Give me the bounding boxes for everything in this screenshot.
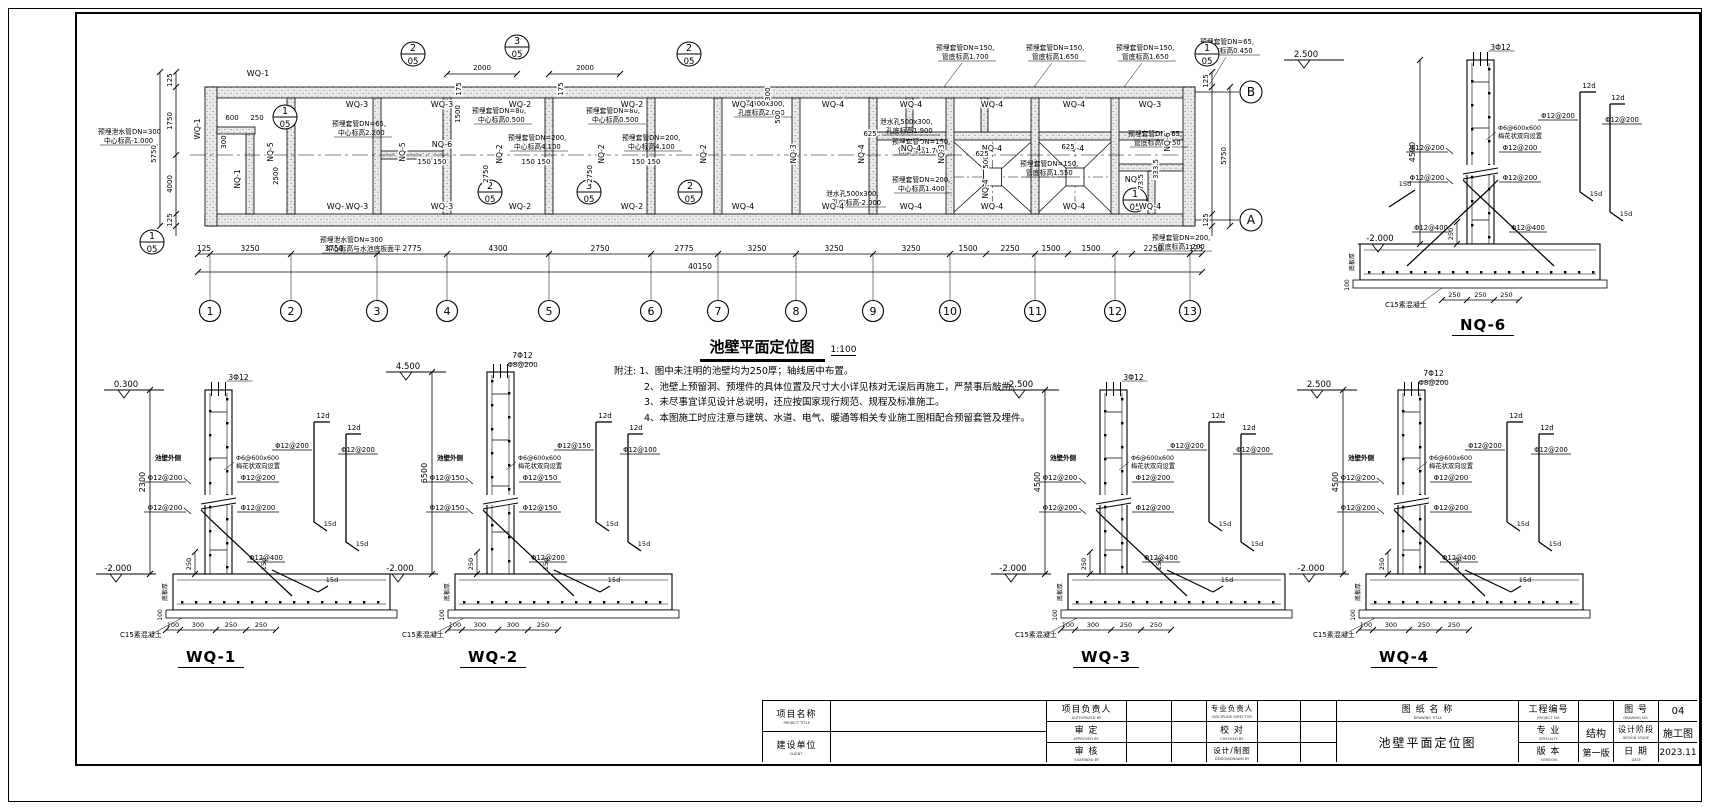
svg-text:Φ12@200: Φ12@200 <box>1236 446 1270 454</box>
svg-text:2500: 2500 <box>272 167 280 185</box>
svg-text:WQ-4: WQ-4 <box>981 100 1003 109</box>
svg-text:-2.000: -2.000 <box>1366 234 1393 244</box>
svg-text:100: 100 <box>439 609 446 621</box>
svg-text:6500: 6500 <box>420 463 429 483</box>
svg-text:15d: 15d <box>1590 190 1602 198</box>
svg-text:NQ-6: NQ-6 <box>1163 132 1172 151</box>
svg-text:2: 2 <box>410 43 416 54</box>
tb-discipline-director-label: 专业负责人DISCIPLINE DIRECTOR <box>1206 700 1257 721</box>
svg-text:预埋套管DN=200,: 预埋套管DN=200, <box>1152 233 1210 242</box>
svg-text:100: 100 <box>157 609 164 621</box>
svg-text:WQ-4: WQ-4 <box>732 100 754 109</box>
svg-text:Φ12@400: Φ12@400 <box>1414 224 1448 232</box>
svg-text:7Φ12: 7Φ12 <box>1423 369 1443 378</box>
svg-text:1: 1 <box>207 305 214 318</box>
tb-designed-sign <box>1257 742 1300 762</box>
tb-version-value: 第一版 <box>1578 742 1613 762</box>
svg-text:2: 2 <box>687 181 693 192</box>
tb-approved-label: 审 定APPROVED BY <box>1046 721 1126 742</box>
plan-title-wrap: 池壁平面定位图1:100 <box>648 336 908 362</box>
svg-text:8: 8 <box>793 305 800 318</box>
svg-text:3250: 3250 <box>240 244 259 253</box>
tb-checked-sign <box>1257 721 1300 742</box>
section-name-wq4: WQ-4 <box>1371 648 1437 668</box>
svg-text:125: 125 <box>1202 74 1210 87</box>
svg-text:100: 100 <box>1062 621 1074 629</box>
svg-text:C15素混凝土: C15素混凝土 <box>1385 300 1427 309</box>
svg-text:管底标高1.200: 管底标高1.200 <box>1158 242 1205 251</box>
svg-text:40150: 40150 <box>688 262 712 271</box>
svg-text:Φ6@600x600: Φ6@600x600 <box>518 454 561 462</box>
svg-text:250: 250 <box>1500 291 1512 299</box>
drawing-sheet: 1253250375027754300275027753250325032501… <box>0 0 1709 808</box>
svg-text:NQ-2: NQ-2 <box>495 144 504 163</box>
svg-text:11: 11 <box>1028 305 1042 318</box>
svg-text:12d: 12d <box>316 412 329 420</box>
section-name-wq3: WQ-3 <box>1073 648 1139 668</box>
svg-text:WQ-4: WQ-4 <box>822 100 844 109</box>
svg-text:Φ12@200: Φ12@200 <box>1503 144 1538 152</box>
svg-text:250: 250 <box>1080 558 1088 570</box>
svg-text:250: 250 <box>467 558 475 570</box>
svg-text:C15素混凝土: C15素混凝土 <box>120 630 162 639</box>
svg-text:250: 250 <box>250 114 263 122</box>
svg-text:12d: 12d <box>1540 424 1553 432</box>
svg-text:7Φ12: 7Φ12 <box>512 351 532 360</box>
svg-text:C15素混凝土: C15素混凝土 <box>1313 630 1355 639</box>
svg-text:底板厚: 底板厚 <box>1354 583 1362 601</box>
svg-text:底板厚: 底板厚 <box>1348 253 1356 271</box>
svg-text:Φ12@200: Φ12@200 <box>241 474 276 482</box>
svg-text:7: 7 <box>715 305 722 318</box>
svg-text:池壁外侧: 池壁外侧 <box>1050 453 1077 462</box>
svg-text:15d: 15d <box>608 576 620 584</box>
section-nq6: 3Φ122.500-2.0004500250底板厚100C15素混凝土25025… <box>1270 22 1694 322</box>
svg-text:Φ12@200: Φ12@200 <box>1341 504 1376 512</box>
svg-text:NQ-2: NQ-2 <box>597 144 606 163</box>
svg-text:150 150: 150 150 <box>632 158 661 166</box>
svg-text:WQ-3: WQ-3 <box>1139 100 1161 109</box>
svg-text:15d: 15d <box>1219 520 1231 528</box>
svg-text:Φ12@200: Φ12@200 <box>1341 474 1376 482</box>
svg-text:中心标高0.500: 中心标高0.500 <box>478 115 525 124</box>
svg-text:250: 250 <box>537 621 549 629</box>
svg-text:NQ-4: NQ-4 <box>857 144 866 163</box>
svg-text:2: 2 <box>686 43 692 54</box>
svg-text:12d: 12d <box>1611 94 1624 102</box>
tb-design-stage-value: 施工图 <box>1658 721 1697 742</box>
svg-text:中心标高与水池底板面平: 中心标高与水池底板面平 <box>326 244 401 253</box>
svg-text:WQ-4: WQ-4 <box>822 202 844 211</box>
svg-text:C15素混凝土: C15素混凝土 <box>1015 630 1057 639</box>
svg-text:12d: 12d <box>1582 82 1595 90</box>
svg-text:2.500: 2.500 <box>1009 380 1033 390</box>
svg-text:预埋套管DN=150,: 预埋套管DN=150, <box>1116 43 1174 52</box>
svg-text:池壁外侧: 池壁外侧 <box>437 453 464 462</box>
svg-text:Φ12@200: Φ12@200 <box>1410 144 1445 152</box>
svg-text:15d: 15d <box>1399 180 1411 188</box>
svg-text:WQ-4: WQ-4 <box>732 202 754 211</box>
svg-text:1: 1 <box>282 106 288 117</box>
svg-text:4000: 4000 <box>166 175 174 193</box>
svg-text:250: 250 <box>1447 228 1455 240</box>
svg-text:Φ12@200: Φ12@200 <box>1503 174 1538 182</box>
svg-text:15d: 15d <box>356 540 368 548</box>
svg-text:C15素混凝土: C15素混凝土 <box>402 630 444 639</box>
svg-text:175: 175 <box>557 82 565 95</box>
section-wq4: 7Φ12Φ8@2002.500-2.0004500250底板厚100C15素混凝… <box>1283 352 1588 645</box>
svg-text:NQ-3: NQ-3 <box>789 144 798 163</box>
svg-text:WQ-3: WQ-3 <box>431 100 453 109</box>
svg-text:300: 300 <box>1087 621 1099 629</box>
tb-spare-2 <box>1171 721 1206 742</box>
svg-text:Φ12@200: Φ12@200 <box>1170 442 1204 450</box>
svg-text:0.300: 0.300 <box>114 380 138 390</box>
section-wq2: 7Φ12Φ8@2004.500-2.0006500250底板厚100C15素混凝… <box>372 352 677 645</box>
svg-text:Φ6@600x600: Φ6@600x600 <box>1429 454 1472 462</box>
svg-text:预埋套管DN=150,: 预埋套管DN=150, <box>1026 43 1084 52</box>
svg-text:管底标高0.450: 管底标高0.450 <box>1134 138 1181 147</box>
svg-text:泄水孔500x300,: 泄水孔500x300, <box>880 117 933 126</box>
svg-text:中心标高-1.000: 中心标高-1.000 <box>104 136 153 145</box>
tb-designed-label: 设计/制图DESIGN/DRAWN BY <box>1206 742 1257 762</box>
tb-examined-label: 审 核EXAMINED BY <box>1046 742 1126 762</box>
svg-text:WQ-3: WQ-3 <box>346 202 368 211</box>
svg-text:600: 600 <box>225 114 238 122</box>
tb-discipline-director-sign <box>1257 700 1300 721</box>
tb-project-no-label: 工程编号PROJECT NO. <box>1518 700 1578 721</box>
svg-text:15d: 15d <box>606 520 618 528</box>
svg-text:15d: 15d <box>1221 576 1233 584</box>
svg-text:孔底标高1.900: 孔底标高1.900 <box>886 126 933 135</box>
svg-text:05: 05 <box>684 57 695 67</box>
svg-text:625: 625 <box>863 130 876 138</box>
svg-text:泄水孔500x300,: 泄水孔500x300, <box>826 189 879 198</box>
svg-text:100: 100 <box>1350 609 1357 621</box>
tb-design-stage-label: 设计阶段DESIGN STAGE <box>1613 721 1658 742</box>
svg-text:3Φ12: 3Φ12 <box>1123 373 1143 382</box>
svg-text:Φ12@150: Φ12@150 <box>523 504 558 512</box>
svg-text:15d: 15d <box>542 558 550 570</box>
svg-text:梅花状双向设置: 梅花状双向设置 <box>518 461 562 470</box>
svg-text:NQ-5: NQ-5 <box>398 142 407 161</box>
tb-approved-sign <box>1126 721 1171 742</box>
svg-text:100: 100 <box>1360 621 1372 629</box>
svg-text:3250: 3250 <box>747 244 766 253</box>
svg-text:Φ12@150: Φ12@150 <box>430 474 465 482</box>
svg-text:底板厚: 底板厚 <box>161 583 169 601</box>
svg-text:3: 3 <box>374 305 381 318</box>
tb-project-title-value <box>830 700 1046 731</box>
svg-text:-2.000: -2.000 <box>999 564 1026 574</box>
svg-text:05: 05 <box>280 120 291 130</box>
svg-text:Φ12@400: Φ12@400 <box>1511 224 1545 232</box>
svg-text:Φ12@200: Φ12@200 <box>1434 474 1469 482</box>
svg-text:NQ-1: NQ-1 <box>233 169 242 188</box>
svg-text:中心标高0.500: 中心标高0.500 <box>592 115 639 124</box>
svg-text:2750: 2750 <box>590 244 609 253</box>
svg-text:WQ-2: WQ-2 <box>621 100 643 109</box>
svg-text:Φ12@200: Φ12@200 <box>1043 474 1078 482</box>
svg-text:12d: 12d <box>629 424 642 432</box>
svg-text:625: 625 <box>975 150 988 158</box>
svg-text:300: 300 <box>220 135 228 148</box>
svg-text:100: 100 <box>1344 279 1351 291</box>
svg-text:12d: 12d <box>598 412 611 420</box>
svg-text:250: 250 <box>1150 621 1162 629</box>
svg-text:梅花状双向设置: 梅花状双向设置 <box>1498 131 1542 140</box>
svg-text:15d: 15d <box>1549 540 1561 548</box>
svg-text:-2.000: -2.000 <box>104 564 131 574</box>
svg-text:Φ12@150: Φ12@150 <box>430 504 465 512</box>
svg-text:预埋套管DN=200,: 预埋套管DN=200, <box>508 133 566 142</box>
svg-text:Φ12@200: Φ12@200 <box>1605 116 1639 124</box>
svg-text:3Φ12: 3Φ12 <box>228 373 248 382</box>
svg-text:125: 125 <box>166 213 174 226</box>
svg-text:Φ12@150: Φ12@150 <box>557 442 591 450</box>
svg-text:预埋套管DN=65,: 预埋套管DN=65, <box>332 119 386 128</box>
svg-text:73.5: 73.5 <box>1137 174 1145 190</box>
tb-specialty-label: 专 业SPECIALTY <box>1518 721 1578 742</box>
svg-text:05: 05 <box>685 195 696 205</box>
tb-drawing-no-value: 04 <box>1658 700 1697 721</box>
svg-text:WQ-4: WQ-4 <box>981 202 1003 211</box>
svg-text:Φ12@200: Φ12@200 <box>1410 174 1445 182</box>
svg-text:管底标高1.550: 管底标高1.550 <box>1026 168 1073 177</box>
svg-text:15d: 15d <box>1620 210 1632 218</box>
svg-text:2775: 2775 <box>402 244 421 253</box>
svg-text:300: 300 <box>192 621 204 629</box>
svg-text:05: 05 <box>512 50 523 60</box>
tb-project-director-sign <box>1126 700 1171 721</box>
svg-text:250: 250 <box>185 558 193 570</box>
tb-date-value: 2023.11 <box>1658 742 1697 762</box>
svg-text:3: 3 <box>514 36 520 47</box>
svg-text:300: 300 <box>764 87 772 100</box>
svg-text:预埋泄水管DN=300: 预埋泄水管DN=300 <box>98 127 161 136</box>
svg-text:2750: 2750 <box>586 165 594 183</box>
svg-text:3Φ12: 3Φ12 <box>1490 43 1510 52</box>
tb-spare-3 <box>1171 742 1206 762</box>
svg-text:3250: 3250 <box>824 244 843 253</box>
svg-text:WQ-1: WQ-1 <box>193 118 202 139</box>
svg-text:4: 4 <box>444 305 451 318</box>
svg-text:预埋套管DN=65,: 预埋套管DN=65, <box>1128 129 1182 138</box>
svg-text:12: 12 <box>1108 305 1122 318</box>
svg-text:250: 250 <box>1378 558 1386 570</box>
svg-text:Φ12@200: Φ12@200 <box>241 504 276 512</box>
svg-text:WQ-2: WQ-2 <box>621 202 643 211</box>
svg-text:1500: 1500 <box>454 105 462 123</box>
tb-date-label: 日 期DATE <box>1613 742 1658 762</box>
tb-checked-label: 校 对CHECKED BY <box>1206 721 1257 742</box>
svg-text:05: 05 <box>584 195 595 205</box>
svg-text:Φ12@200: Φ12@200 <box>1434 504 1469 512</box>
svg-text:梅花状双向设置: 梅花状双向设置 <box>236 461 280 470</box>
svg-text:Φ8@200: Φ8@200 <box>507 361 537 369</box>
svg-text:Φ12@200: Φ12@200 <box>1043 504 1078 512</box>
svg-text:2: 2 <box>288 305 295 318</box>
svg-text:4300: 4300 <box>488 244 507 253</box>
svg-text:250: 250 <box>1448 291 1460 299</box>
svg-text:100: 100 <box>167 621 179 629</box>
svg-text:5: 5 <box>546 305 553 318</box>
svg-text:预埋泄水管DN=300: 预埋泄水管DN=300 <box>320 235 383 244</box>
svg-text:6: 6 <box>648 305 655 318</box>
svg-text:15d: 15d <box>324 520 336 528</box>
tb-project-director-label: 项目负责人AUTHORIZED BY <box>1046 700 1126 721</box>
svg-text:12d: 12d <box>1211 412 1224 420</box>
svg-text:300: 300 <box>1385 621 1397 629</box>
svg-text:WQ-3: WQ-3 <box>346 100 368 109</box>
plan-scale: 1:100 <box>831 345 857 356</box>
svg-text:Φ12@200: Φ12@200 <box>275 442 309 450</box>
plan-title: 池壁平面定位图 <box>700 336 825 362</box>
svg-text:WQ-4: WQ-4 <box>1063 100 1085 109</box>
svg-text:125: 125 <box>166 73 174 86</box>
svg-text:15d: 15d <box>638 540 650 548</box>
svg-text:2250: 2250 <box>1000 244 1019 253</box>
svg-text:1: 1 <box>1204 43 1210 54</box>
svg-text:中心标高1.400: 中心标高1.400 <box>898 184 945 193</box>
tb-drawing-title-label: 图 纸 名 称DRAWING TITLE <box>1336 700 1518 721</box>
svg-text:12d: 12d <box>347 424 360 432</box>
svg-text:梅花状双向设置: 梅花状双向设置 <box>1131 461 1175 470</box>
svg-text:5750: 5750 <box>150 145 158 163</box>
svg-text:Φ12@200: Φ12@200 <box>1136 504 1171 512</box>
svg-text:05: 05 <box>1202 57 1213 67</box>
svg-text:B: B <box>1247 85 1255 99</box>
svg-text:-2.000: -2.000 <box>386 564 413 574</box>
svg-text:底板厚: 底板厚 <box>1056 583 1064 601</box>
svg-text:175: 175 <box>455 82 463 95</box>
svg-text:WQ-2: WQ-2 <box>509 100 531 109</box>
svg-text:预埋套管DN=150,: 预埋套管DN=150, <box>936 43 994 52</box>
svg-text:NQ-4: NQ-4 <box>981 179 990 198</box>
svg-text:15d: 15d <box>1519 576 1531 584</box>
svg-text:1750: 1750 <box>166 112 174 130</box>
svg-text:333.5: 333.5 <box>1152 159 1160 179</box>
svg-text:Φ12@200: Φ12@200 <box>1534 446 1568 454</box>
svg-text:15d: 15d <box>326 576 338 584</box>
tb-spare-4 <box>1300 700 1336 721</box>
section-wq3: 3Φ122.500-2.0004500250底板厚100C15素混凝土10030… <box>985 352 1290 645</box>
svg-text:625: 625 <box>1061 143 1074 151</box>
section-name-wq2: WQ-2 <box>460 648 526 668</box>
svg-text:1: 1 <box>149 231 155 242</box>
svg-text:Φ12@200: Φ12@200 <box>1468 442 1502 450</box>
svg-text:2775: 2775 <box>674 244 693 253</box>
svg-text:12d: 12d <box>1242 424 1255 432</box>
svg-text:WQ-1: WQ-1 <box>247 69 269 78</box>
svg-text:WQ-4: WQ-4 <box>900 202 922 211</box>
svg-text:05: 05 <box>485 195 496 205</box>
svg-text:15d: 15d <box>1155 558 1163 570</box>
svg-text:05: 05 <box>147 245 158 255</box>
svg-text:250: 250 <box>1474 291 1486 299</box>
svg-text:NQ-3: NQ-3 <box>937 144 946 163</box>
tb-examined-sign <box>1126 742 1171 762</box>
svg-text:WQ-2: WQ-2 <box>509 202 531 211</box>
svg-text:中心标高2.200: 中心标高2.200 <box>338 128 385 137</box>
svg-text:Φ8@200: Φ8@200 <box>1418 379 1448 387</box>
svg-text:NQ-4: NQ-4 <box>901 144 921 153</box>
svg-text:12d: 12d <box>1509 412 1522 420</box>
svg-text:Φ6@600x600: Φ6@600x600 <box>1131 454 1174 462</box>
svg-text:1500: 1500 <box>1041 244 1060 253</box>
svg-text:15d: 15d <box>260 558 268 570</box>
tb-client-label: 建设单位CLIENT <box>762 731 830 762</box>
svg-text:150 150: 150 150 <box>522 158 551 166</box>
svg-text:Φ12@200: Φ12@200 <box>1136 474 1171 482</box>
tb-project-title-label: 项目名称PROJECT TITLE <box>762 700 830 731</box>
svg-text:500: 500 <box>774 110 782 123</box>
svg-text:底板厚: 底板厚 <box>443 583 451 601</box>
svg-text:9: 9 <box>870 305 877 318</box>
svg-text:05: 05 <box>408 57 419 67</box>
svg-text:Φ12@200: Φ12@200 <box>341 446 375 454</box>
svg-text:预埋套管DN=150,: 预埋套管DN=150, <box>1020 159 1078 168</box>
section-wq1: 3Φ120.300-2.0002300250底板厚100C15素混凝土10030… <box>90 352 395 645</box>
svg-text:NQ-6: NQ-6 <box>432 140 452 149</box>
svg-text:A: A <box>1247 213 1256 227</box>
svg-text:WQ-4: WQ-4 <box>900 100 922 109</box>
svg-text:Φ6@600x600: Φ6@600x600 <box>236 454 279 462</box>
tb-spare-1 <box>1171 700 1206 721</box>
svg-text:250: 250 <box>255 621 267 629</box>
svg-text:100: 100 <box>449 621 461 629</box>
svg-text:300: 300 <box>474 621 486 629</box>
tb-drawing-title-value: 池壁平面定位图 <box>1336 721 1518 762</box>
svg-text:-2.000: -2.000 <box>1297 564 1324 574</box>
svg-text:管底标高1.650: 管底标高1.650 <box>1032 52 1079 61</box>
tb-project-no-value <box>1578 700 1613 721</box>
svg-text:1500: 1500 <box>1081 244 1100 253</box>
svg-text:管底标高1.700: 管底标高1.700 <box>942 52 989 61</box>
svg-text:13: 13 <box>1183 305 1197 318</box>
section-name-wq1: WQ-1 <box>178 648 244 668</box>
svg-text:NQ-5: NQ-5 <box>266 142 275 161</box>
svg-text:预埋套管DN=200,: 预埋套管DN=200, <box>892 175 950 184</box>
svg-text:1500: 1500 <box>958 244 977 253</box>
svg-text:预埋套管DN=200,: 预埋套管DN=200, <box>622 133 680 142</box>
svg-text:125: 125 <box>1202 213 1210 226</box>
section-name-nq6: NQ-6 <box>1452 316 1514 336</box>
svg-text:150 150: 150 150 <box>418 158 447 166</box>
svg-text:WQ-3: WQ-3 <box>431 202 453 211</box>
tb-drawing-no-label: 图 号DRAWING NO. <box>1613 700 1658 721</box>
svg-text:池壁外侧: 池壁外侧 <box>155 453 182 462</box>
svg-text:Φ12@150: Φ12@150 <box>523 474 558 482</box>
svg-text:梅花状双向设置: 梅花状双向设置 <box>1429 461 1473 470</box>
svg-text:250: 250 <box>225 621 237 629</box>
svg-text:10: 10 <box>943 305 957 318</box>
tb-spare-5 <box>1300 721 1336 742</box>
svg-text:管底标高1.650: 管底标高1.650 <box>1122 52 1169 61</box>
svg-text:Φ12@100: Φ12@100 <box>623 446 657 454</box>
tb-version-label: 版 本VERSION <box>1518 742 1578 762</box>
svg-text:2750: 2750 <box>482 165 490 183</box>
svg-text:300: 300 <box>507 621 519 629</box>
svg-text:Φ12@200: Φ12@200 <box>148 474 183 482</box>
svg-text:WQ-4: WQ-4 <box>1063 202 1085 211</box>
svg-text:中心标高4.100: 中心标高4.100 <box>628 142 675 151</box>
svg-text:中心标高4.100: 中心标高4.100 <box>514 142 561 151</box>
tb-specialty-value: 结构 <box>1578 721 1613 742</box>
svg-text:15d: 15d <box>1517 520 1529 528</box>
svg-text:2.500: 2.500 <box>1294 50 1318 60</box>
svg-text:3250: 3250 <box>901 244 920 253</box>
